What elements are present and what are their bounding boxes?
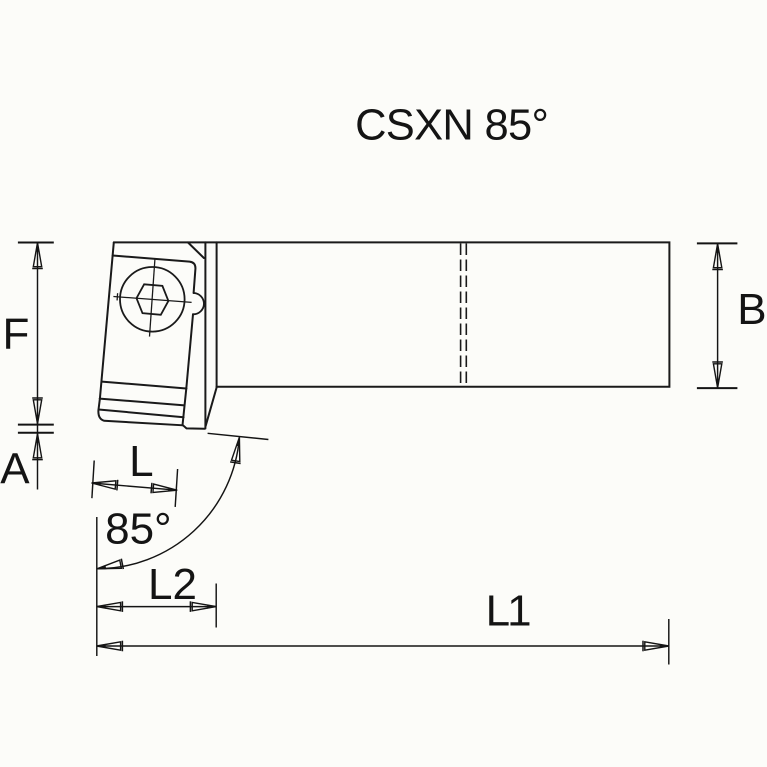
svg-text:L: L xyxy=(129,437,153,486)
svg-text:85°: 85° xyxy=(105,505,172,554)
svg-text:B: B xyxy=(737,285,766,334)
svg-text:CSXN 85°: CSXN 85° xyxy=(355,102,548,150)
svg-text:L1: L1 xyxy=(486,587,530,636)
svg-text:F: F xyxy=(3,309,30,358)
svg-text:L2: L2 xyxy=(148,560,197,609)
svg-text:A: A xyxy=(0,445,30,494)
